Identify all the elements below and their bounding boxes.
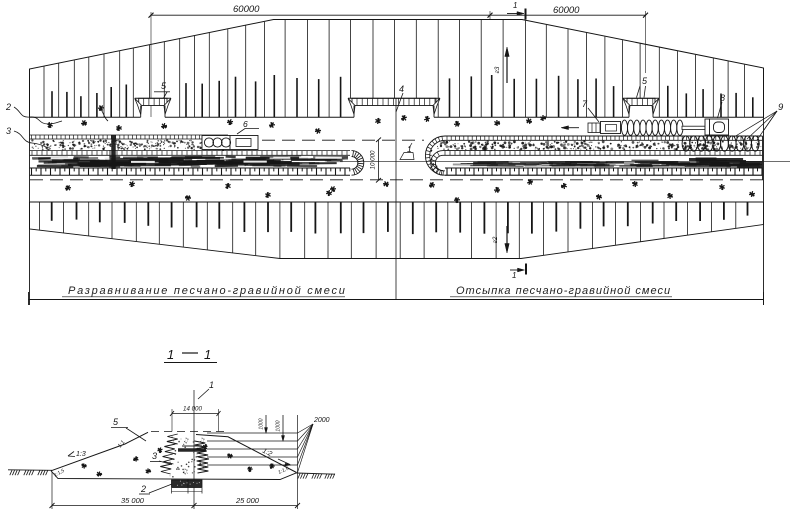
svg-text:3: 3 xyxy=(152,451,157,461)
svg-text:2000: 2000 xyxy=(313,417,330,424)
svg-text:1: 1 xyxy=(167,347,174,362)
svg-text:25 000: 25 000 xyxy=(235,496,260,505)
svg-text:60000: 60000 xyxy=(553,5,580,16)
svg-text:1: 1 xyxy=(513,1,517,10)
svg-text:Отсыпка песчано-гравийной смес: Отсыпка песчано-гравийной смеси xyxy=(456,285,671,297)
svg-text:2: 2 xyxy=(5,102,11,112)
svg-text:1000: 1000 xyxy=(259,418,265,429)
svg-text:9: 9 xyxy=(778,102,784,113)
svg-text:2: 2 xyxy=(140,484,146,494)
svg-text:1: 1 xyxy=(209,380,214,390)
svg-text:10 000: 10 000 xyxy=(370,150,377,169)
svg-text:1: 1 xyxy=(204,347,211,362)
svg-text:1: 1 xyxy=(512,271,516,280)
svg-text:14 000: 14 000 xyxy=(183,406,202,413)
svg-text:3: 3 xyxy=(6,126,11,136)
svg-text:1000: 1000 xyxy=(276,420,282,431)
svg-text:4: 4 xyxy=(399,84,404,94)
svg-text:Разравнивание песчано-гравийно: Разравнивание песчано-гравийной смеси xyxy=(68,285,347,297)
svg-text:35 000: 35 000 xyxy=(121,496,145,505)
svg-text:г2: г2 xyxy=(492,236,499,243)
svg-text:8: 8 xyxy=(720,93,725,103)
svg-text:60000: 60000 xyxy=(233,4,260,15)
svg-text:6: 6 xyxy=(243,119,248,129)
svg-text:г3: г3 xyxy=(494,66,501,73)
svg-text:1:3: 1:3 xyxy=(76,451,86,458)
